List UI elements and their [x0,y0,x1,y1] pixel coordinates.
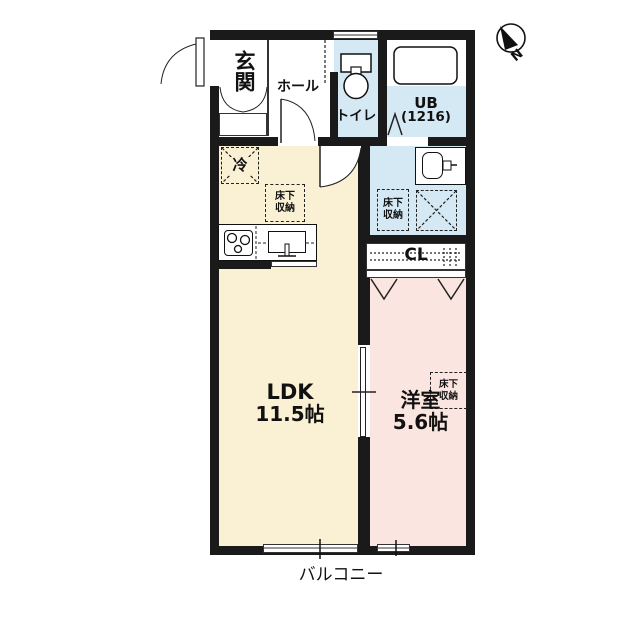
closet-label: CL [402,246,430,266]
compass-north-label: N [506,44,531,68]
window-toilet [333,31,378,39]
western-room-size: 5.6帖 [378,411,463,434]
sliding-door [360,347,366,437]
underfloor-storage-ldk: 床下 収納 [265,184,305,222]
entrance-doorway [210,40,219,86]
western-room-label: 洋室 [378,389,463,412]
wall-divider-lower [358,437,370,546]
storage-label-line1: 床下 [383,198,403,211]
storage-label-line1: 床下 [275,191,295,204]
stove-icon [224,230,253,256]
entrance-label: 玄関 [222,42,256,100]
storage-label-line2: 収納 [275,203,295,216]
wall-hall-ldk-right [428,137,466,146]
entrance-door [196,38,204,86]
wall-hall-ldk-mid [318,137,387,146]
shoe-cabinet [219,113,267,136]
sink-icon [268,231,306,253]
hall-label: ホール [268,79,328,95]
unit-bath-tub-area [387,40,466,86]
wall-right [466,30,475,555]
balcony-label: バルコニー [276,566,406,586]
window-western [377,544,410,552]
wall-washroom-closet [358,235,466,243]
wall-toilet-left [330,72,338,137]
kitchen-ledge [271,261,317,267]
closet-door-track [366,270,466,278]
underfloor-storage-washroom: 床下 収納 [377,189,409,231]
ldk-label: LDK [240,380,340,404]
window-ldk [263,544,358,553]
storage-label-line2: 収納 [383,210,403,223]
washbasin-icon [422,152,443,179]
wall-left [210,30,219,555]
kitchen-half-wall [218,261,271,269]
wall-hall-ldk-left [219,137,278,146]
toilet-label: トイレ [332,109,380,125]
unit-bath-size: (1216) [396,110,456,126]
washing-machine-space [416,190,457,231]
ldk-size: 11.5帖 [240,403,340,426]
refrigerator-label: 冷 [230,157,250,175]
floor-plan: 床下 収納 床下 収納 床下 収納 [0,0,640,639]
